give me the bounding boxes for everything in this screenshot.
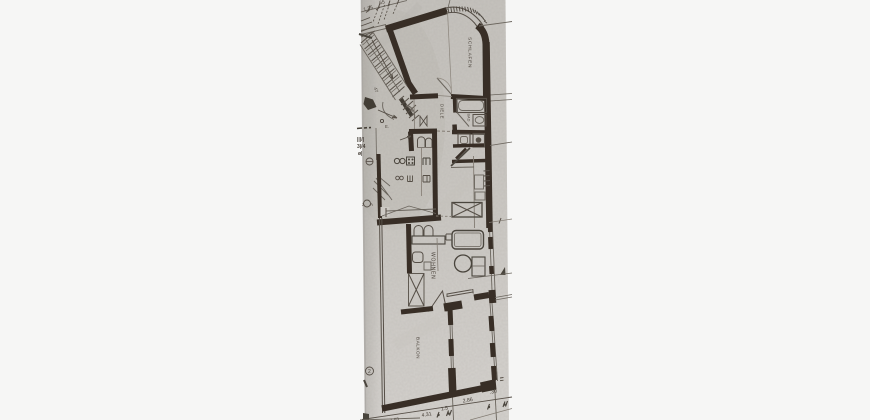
svg-text:2: 2 (368, 369, 371, 375)
svg-text:.30: .30 (489, 389, 497, 396)
svg-text:E.: E. (385, 124, 389, 129)
svg-text:|||/|: |||/| (357, 137, 365, 143)
svg-text:ø|: ø| (358, 151, 363, 157)
svg-text:A: A (370, 202, 373, 207)
svg-text:SCHLAFEN: SCHLAFEN (467, 37, 473, 68)
svg-text:3|/4: 3|/4 (357, 144, 366, 150)
svg-text:DIELE: DIELE (440, 104, 445, 119)
svg-text:1.5: 1.5 (440, 405, 448, 412)
svg-text:BAD: BAD (467, 114, 471, 122)
svg-text:1.03: 1.03 (390, 416, 400, 420)
svg-text:WOHNEN: WOHNEN (430, 252, 436, 280)
svg-text:BALKON: BALKON (416, 337, 421, 359)
